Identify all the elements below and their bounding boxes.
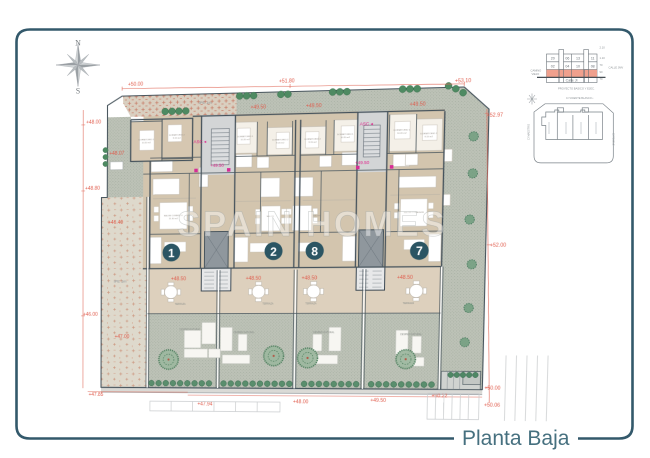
svg-text:04: 04 bbox=[565, 65, 569, 69]
svg-text:Planta Baja: Planta Baja bbox=[462, 427, 570, 450]
svg-text:10: 10 bbox=[576, 65, 580, 69]
svg-text:13: 13 bbox=[576, 57, 580, 61]
svg-text:70: 70 bbox=[600, 77, 603, 81]
svg-text:02: 02 bbox=[551, 65, 555, 69]
svg-text:PROYECTO BASICO Y EJEC.: PROYECTO BASICO Y EJEC. bbox=[558, 87, 595, 91]
svg-text:20: 20 bbox=[551, 57, 555, 61]
svg-text:08: 08 bbox=[591, 65, 595, 69]
svg-text:90: 90 bbox=[600, 70, 603, 74]
svg-text:06: 06 bbox=[565, 57, 569, 61]
svg-text:C/ TOMAS: C/ TOMAS bbox=[612, 133, 616, 146]
svg-text:70: 70 bbox=[600, 63, 603, 67]
svg-text:2.10: 2.10 bbox=[600, 46, 606, 50]
svg-text:VIEJO: VIEJO bbox=[532, 72, 540, 76]
svg-text:11: 11 bbox=[591, 57, 595, 61]
svg-text:CALLE JMV: CALLE JMV bbox=[609, 66, 624, 70]
svg-text:C/ MAESTRO: C/ MAESTRO bbox=[527, 124, 531, 140]
svg-text:SPAIN HOMES: SPAIN HOMES bbox=[177, 205, 447, 244]
svg-text:N: N bbox=[75, 39, 81, 48]
svg-text:1.10: 1.10 bbox=[600, 56, 606, 60]
svg-text:S: S bbox=[76, 87, 80, 96]
svg-text:CAMINO: CAMINO bbox=[531, 69, 542, 73]
svg-text:Calle Ji: Calle Ji bbox=[566, 79, 578, 83]
svg-text:C/ VICENTE BLASCO ▪: C/ VICENTE BLASCO ▪ bbox=[566, 96, 594, 100]
